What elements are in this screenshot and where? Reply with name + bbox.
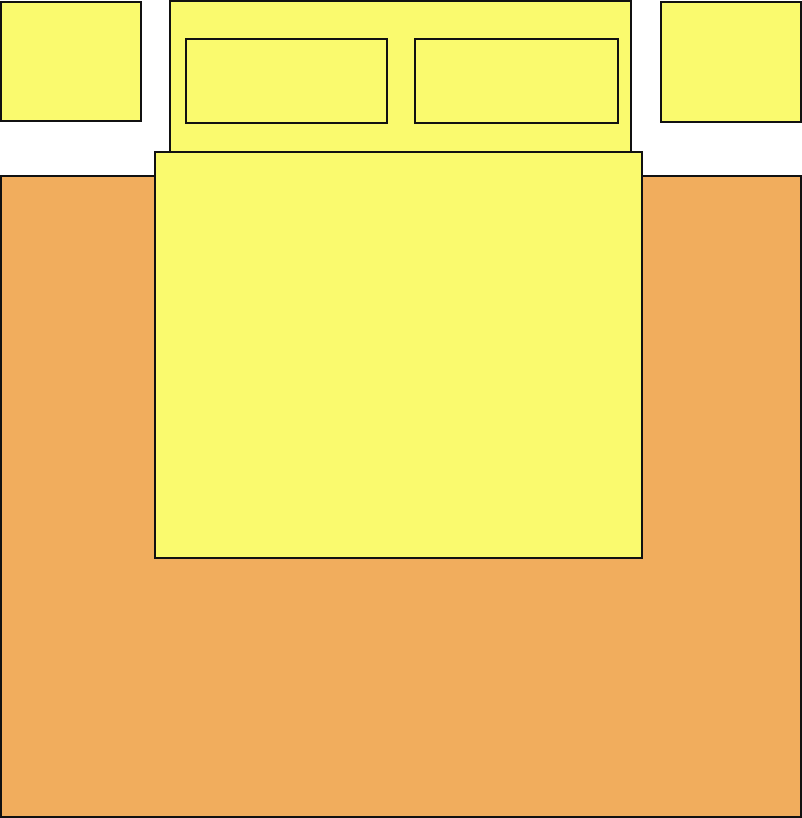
pillow-right[interactable]	[414, 38, 619, 124]
pillow-left[interactable]	[185, 38, 388, 124]
floorplan-canvas	[0, 0, 802, 818]
nightstand-left[interactable]	[0, 1, 142, 122]
bed[interactable]	[154, 151, 643, 559]
nightstand-right[interactable]	[660, 1, 802, 123]
